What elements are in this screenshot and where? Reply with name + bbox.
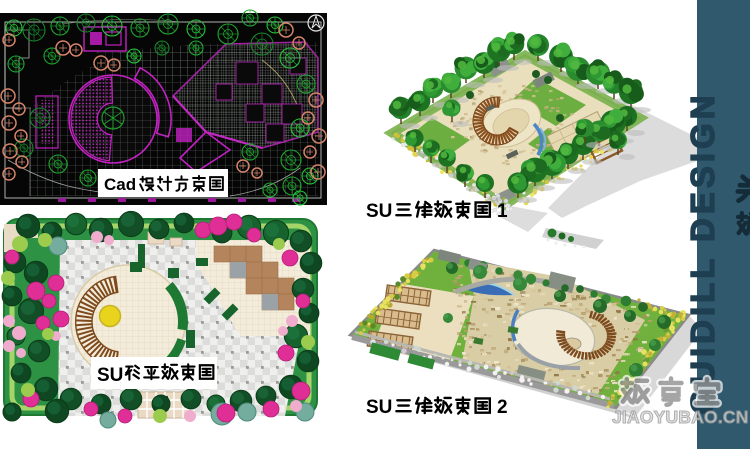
svg-text:1: 1 <box>497 201 508 222</box>
svg-text:SU: SU <box>97 365 123 386</box>
svg-text:JIAOYUBAO.CN: JIAOYUBAO.CN <box>612 407 749 427</box>
svg-text:SU: SU <box>366 201 392 222</box>
svg-text:2: 2 <box>497 397 508 418</box>
svg-text:Cad: Cad <box>104 175 136 194</box>
svg-text:SU: SU <box>366 397 392 418</box>
svg-text:GUIDILL DESIGN: GUIDILL DESIGN <box>684 91 721 414</box>
